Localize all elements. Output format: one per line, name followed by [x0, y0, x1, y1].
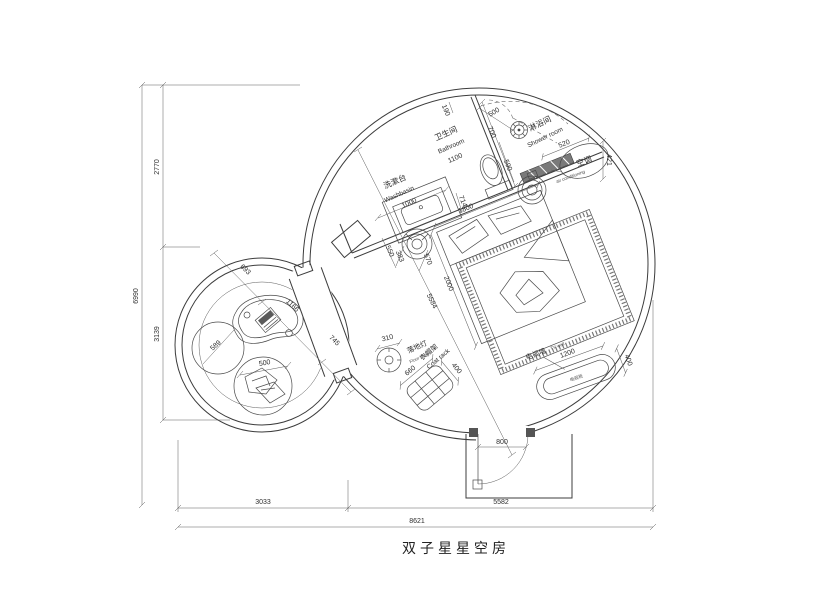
dim-label-total-height: 6990 — [133, 288, 140, 304]
cup — [244, 312, 250, 318]
round-chair: 500 — [234, 357, 292, 415]
label-shower-cn: 淋浴间 — [527, 114, 553, 134]
dim-label-tv-depth: 400 — [623, 354, 634, 367]
door-post — [469, 428, 478, 437]
large-room-walls — [303, 88, 655, 440]
dim-label-bathroom-gap: 190 — [440, 104, 451, 118]
dim-label-ac-offset: 421 — [605, 154, 612, 166]
bed-dimensions: 1800 2000 — [420, 176, 589, 351]
door-handle — [473, 480, 482, 489]
label-tv-cn: 电视墙 — [524, 346, 547, 362]
dim-label-shower-entry: 500 — [487, 107, 501, 119]
label-tv-cabinet: 电视柜 — [569, 372, 585, 383]
dim-washbasin-depth: 550 — [382, 238, 396, 268]
pouf: 589 — [192, 322, 244, 374]
dim-tv-depth: 400 — [613, 342, 636, 377]
dim-label-pouf: 589 — [209, 339, 222, 352]
dim-ac-offset: 421 — [600, 138, 612, 182]
label-ac-cn: 空调 — [575, 154, 593, 169]
dim-label-right-width: 5582 — [493, 499, 509, 506]
dim-label-entry-door: 800 — [496, 439, 508, 446]
chair-cushion — [256, 382, 285, 403]
door-post — [526, 428, 535, 437]
dim-label-coat-width: 660 — [404, 365, 418, 378]
dim-floor-lamp: 310 — [375, 334, 402, 352]
chair-cushion — [245, 368, 277, 394]
dim-bathroom-gap: 190 — [440, 102, 453, 117]
cup — [286, 330, 293, 337]
label-ac-en: air conditioning — [555, 169, 586, 184]
entry-vestibule: 800 — [466, 426, 572, 498]
dim-label-chair: 500 — [258, 359, 271, 368]
sheet-fold — [450, 224, 554, 266]
dim-label-washbasin-depth: 550 — [384, 245, 395, 259]
floor-plan-canvas: 800 — [0, 0, 837, 592]
dim-label-lamp-dia: 310 — [381, 334, 394, 344]
dim-room-diagonal: 5584 — [354, 147, 516, 458]
label-bathroom-cn: 卫生间 — [433, 124, 459, 143]
dim-label-bed-length: 2000 — [442, 275, 454, 292]
dim-label-total-width: 8621 — [409, 518, 425, 525]
pillow — [488, 202, 531, 237]
dim-label-bathroom-door: 700 — [486, 126, 497, 140]
laptop — [255, 307, 281, 332]
corridor-stub — [332, 220, 371, 257]
dim-label-bathroom-width: 1100 — [447, 152, 464, 165]
page-title: 双子星星空房 — [402, 540, 510, 556]
floor-lamp — [377, 348, 401, 372]
dim-label-bathroom-depth: 590 — [502, 159, 513, 173]
pillow — [447, 218, 491, 256]
dim-label-room-diagonal: 5584 — [425, 293, 438, 310]
dim-label-upper-height: 2770 — [154, 159, 161, 175]
dim-label-lounge-a: 693 — [238, 263, 251, 276]
dim-chair: 500 — [237, 359, 291, 378]
dim-label-washbasin-length: 1000 — [401, 197, 418, 210]
blanket-crumple — [495, 259, 564, 323]
corridor-opening — [285, 258, 361, 387]
dims-bottom: 3033 5582 8621 — [175, 300, 656, 530]
floor-plan-page: 800 — [0, 0, 837, 592]
tv-wall-cabinet: 电视柜 1200 400 电视墙 TV wall — [524, 320, 636, 406]
dim-label-bedside-a: 383 — [394, 250, 405, 264]
dim-label-bedside-b: 570 — [422, 253, 433, 267]
dim-label-left-width: 3033 — [255, 499, 271, 506]
dim-label-lower-height: 3139 — [154, 326, 161, 342]
dim-shower-entry: 500 — [476, 105, 516, 133]
